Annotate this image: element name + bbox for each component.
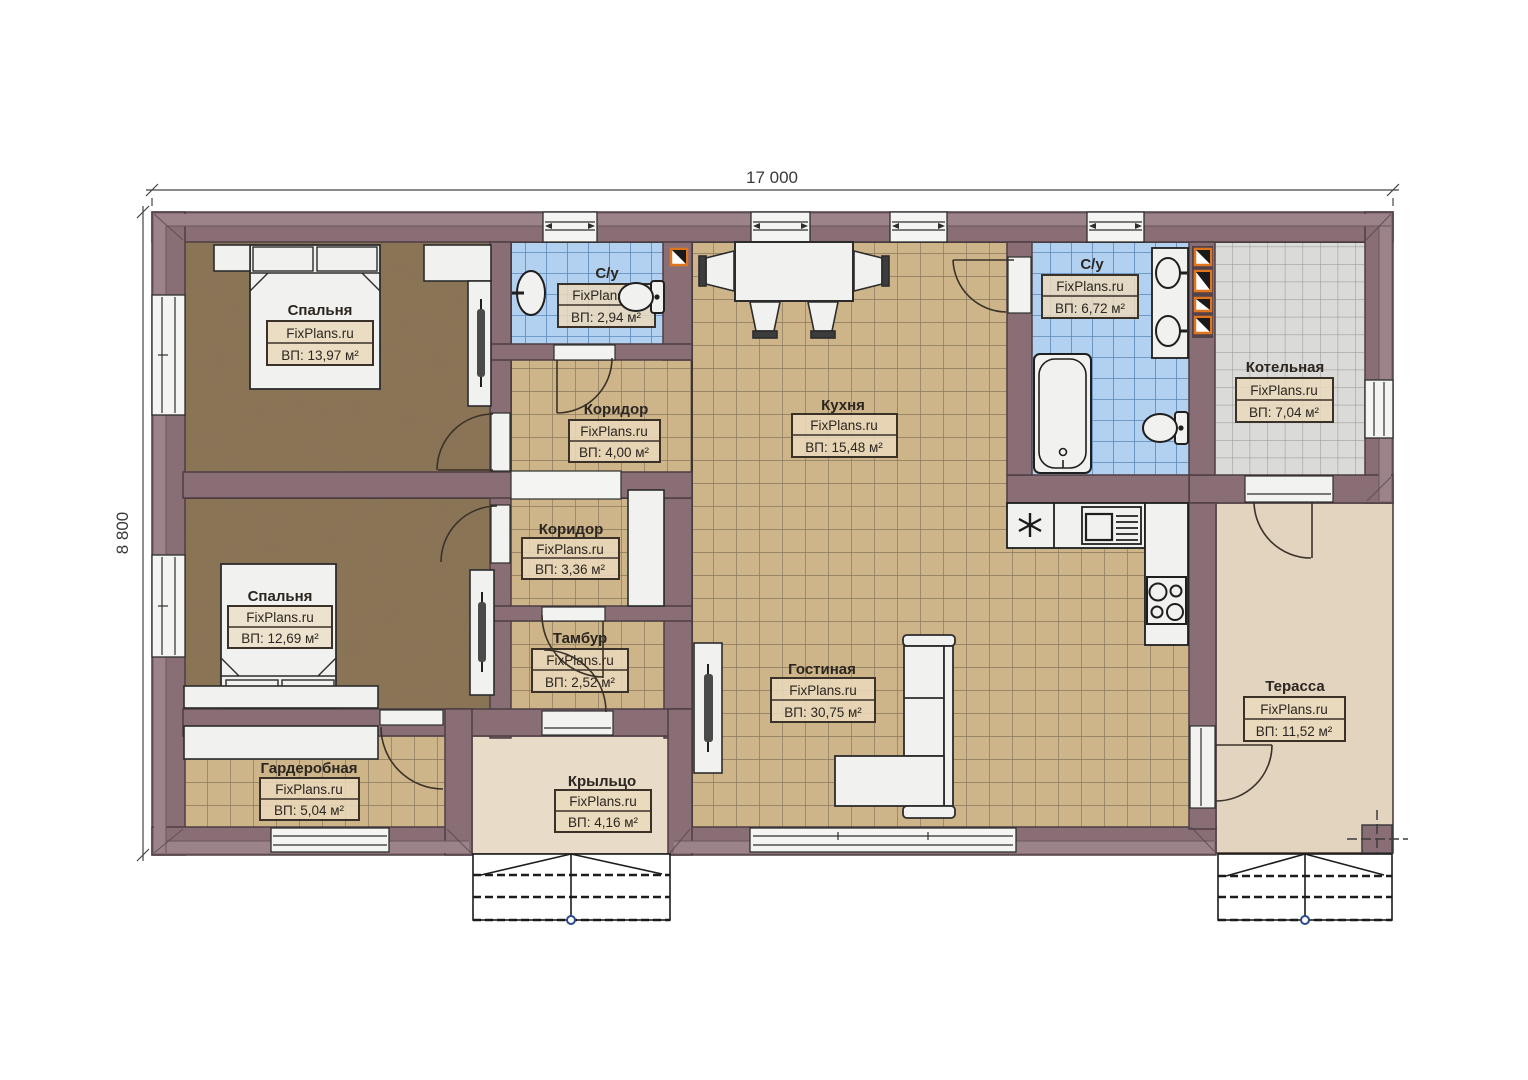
svg-text:FixPlans.ru: FixPlans.ru xyxy=(1056,279,1124,294)
svg-text:FixPlans.ru: FixPlans.ru xyxy=(275,782,343,797)
svg-text:FixPlans.ru: FixPlans.ru xyxy=(1250,383,1318,398)
svg-text:ВП: 11,52 м²: ВП: 11,52 м² xyxy=(1256,724,1333,739)
svg-text:Гостиная: Гостиная xyxy=(788,661,856,678)
svg-text:ВП: 6,72 м²: ВП: 6,72 м² xyxy=(1055,301,1126,316)
svg-text:ВП: 30,75 м²: ВП: 30,75 м² xyxy=(784,705,862,720)
svg-text:ВП: 7,04 м²: ВП: 7,04 м² xyxy=(1249,405,1320,420)
svg-text:С/у: С/у xyxy=(1080,256,1104,273)
svg-text:ВП: 4,00 м²: ВП: 4,00 м² xyxy=(579,445,650,460)
svg-text:Спальня: Спальня xyxy=(288,302,353,319)
svg-text:FixPlans.ru: FixPlans.ru xyxy=(536,542,604,557)
svg-text:Тамбур: Тамбур xyxy=(553,630,607,647)
svg-text:FixPlans.ru: FixPlans.ru xyxy=(810,418,878,433)
svg-text:ВП: 5,04 м²: ВП: 5,04 м² xyxy=(274,803,345,818)
svg-text:Коридор: Коридор xyxy=(584,401,649,418)
svg-text:Крыльцо: Крыльцо xyxy=(568,773,636,790)
svg-text:FixPlans.ru: FixPlans.ru xyxy=(569,794,637,809)
svg-text:С/у: С/у xyxy=(595,265,619,282)
svg-text:Терасса: Терасса xyxy=(1265,678,1325,695)
svg-text:FixPlans.ru: FixPlans.ru xyxy=(246,610,314,625)
svg-text:ВП: 13,97 м²: ВП: 13,97 м² xyxy=(281,348,359,363)
svg-text:ВП: 2,52 м²: ВП: 2,52 м² xyxy=(545,675,616,690)
svg-text:Спальня: Спальня xyxy=(248,588,313,605)
svg-text:ВП: 12,69 м²: ВП: 12,69 м² xyxy=(241,631,319,646)
svg-text:ВП: 15,48 м²: ВП: 15,48 м² xyxy=(805,440,883,455)
svg-text:Кухня: Кухня xyxy=(821,397,865,414)
svg-text:Котельная: Котельная xyxy=(1246,359,1325,376)
svg-text:ВП: 4,16 м²: ВП: 4,16 м² xyxy=(568,815,639,830)
svg-text:17 000: 17 000 xyxy=(746,168,798,187)
svg-text:FixPlans.ru: FixPlans.ru xyxy=(789,683,857,698)
svg-text:FixPlans.ru: FixPlans.ru xyxy=(286,326,354,341)
svg-text:FixPlans.ru: FixPlans.ru xyxy=(580,424,648,439)
svg-text:8 800: 8 800 xyxy=(113,512,132,555)
svg-text:FixPlans.ru: FixPlans.ru xyxy=(1260,702,1328,717)
svg-text:Гардеробная: Гардеробная xyxy=(260,760,357,777)
svg-text:ВП: 2,94 м²: ВП: 2,94 м² xyxy=(571,310,642,325)
svg-text:Коридор: Коридор xyxy=(539,521,604,538)
svg-text:ВП: 3,36 м²: ВП: 3,36 м² xyxy=(535,562,606,577)
